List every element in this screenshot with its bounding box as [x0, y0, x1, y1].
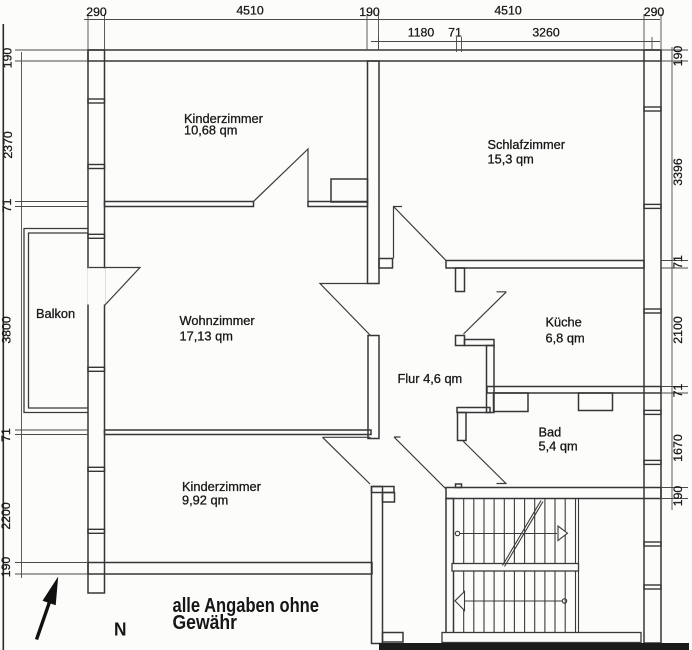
svg-text:9,92 qm: 9,92 qm [182, 493, 228, 508]
svg-text:3800: 3800 [0, 316, 14, 344]
svg-text:190: 190 [671, 46, 685, 67]
svg-text:5,4 qm: 5,4 qm [539, 439, 578, 454]
svg-text:17,13 qm: 17,13 qm [180, 329, 233, 344]
svg-text:2100: 2100 [671, 316, 685, 344]
svg-text:N: N [114, 620, 127, 640]
svg-text:190: 190 [0, 557, 13, 578]
svg-text:Flur 4,6 qm: Flur 4,6 qm [398, 371, 463, 386]
svg-text:190: 190 [359, 5, 380, 19]
svg-text:Schlafzimmer: Schlafzimmer [488, 137, 566, 152]
svg-text:71: 71 [671, 384, 685, 398]
svg-text:290: 290 [86, 5, 107, 19]
svg-text:71: 71 [0, 428, 13, 442]
svg-text:2200: 2200 [0, 502, 13, 530]
svg-text:190: 190 [671, 486, 685, 507]
svg-text:190: 190 [1, 48, 15, 69]
svg-text:3396: 3396 [671, 158, 685, 186]
svg-text:6,8 qm: 6,8 qm [546, 331, 585, 346]
svg-text:4510: 4510 [236, 4, 264, 18]
svg-text:Wohnzimmer: Wohnzimmer [180, 313, 256, 328]
svg-text:3260: 3260 [532, 26, 560, 40]
svg-text:Küche: Küche [546, 315, 582, 330]
svg-text:Bad: Bad [539, 425, 562, 440]
svg-text:1670: 1670 [671, 434, 685, 462]
svg-text:71: 71 [0, 199, 14, 213]
svg-text:4510: 4510 [494, 4, 522, 18]
svg-text:15,3 qm: 15,3 qm [488, 152, 534, 167]
svg-text:Balkon: Balkon [36, 306, 75, 321]
svg-text:1180: 1180 [408, 26, 435, 40]
svg-text:2370: 2370 [1, 131, 15, 159]
svg-text:290: 290 [644, 5, 665, 19]
svg-text:71: 71 [448, 26, 462, 40]
svg-text:Gewähr: Gewähr [173, 612, 238, 634]
svg-text:71: 71 [671, 255, 685, 269]
svg-text:10,68 qm: 10,68 qm [184, 123, 237, 138]
